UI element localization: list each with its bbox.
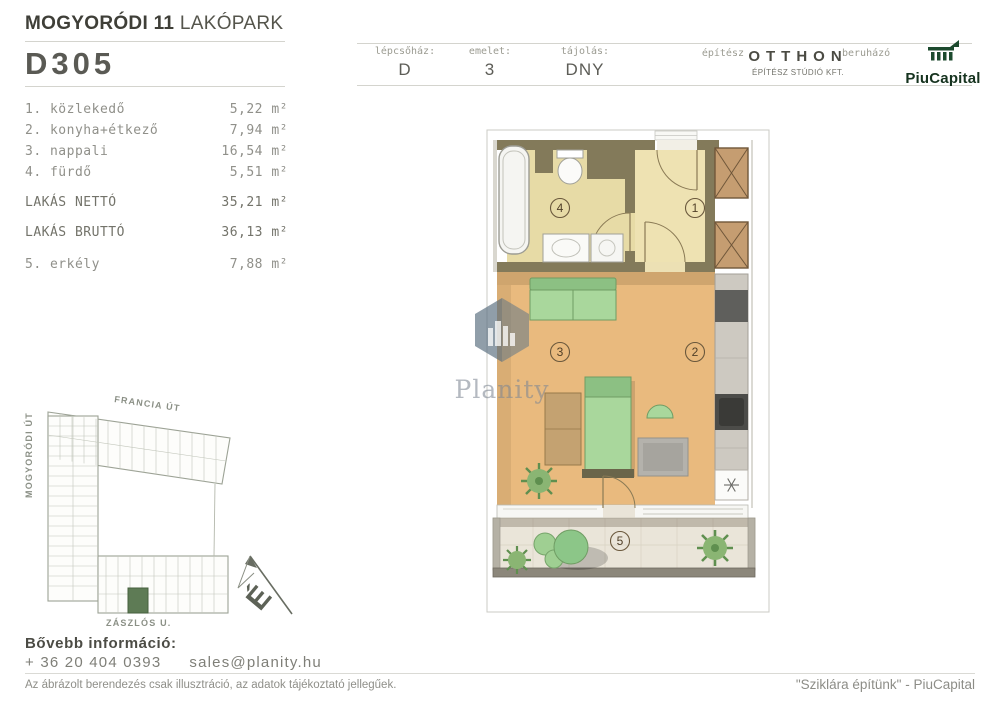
project-name-suffix: LAKÓPARK xyxy=(180,13,283,34)
meta-orientation: tájolás: DNY xyxy=(530,46,640,80)
total-label: LAKÁS BRUTTÓ xyxy=(25,222,125,243)
contact-heading: Bővebb információ: xyxy=(25,635,177,652)
ac-unit xyxy=(715,470,748,500)
compass: É xyxy=(226,530,306,630)
page-title: MOGYORÓDI 11 LAKÓPARK xyxy=(25,13,283,35)
room-number-2: 2 xyxy=(692,345,699,359)
project-name: MOGYORÓDI 11 xyxy=(25,13,174,34)
balcony-railing xyxy=(493,568,755,577)
contact-email: sales@planity.hu xyxy=(189,654,322,671)
room-row: 4. fürdő 5,51 m² xyxy=(25,162,288,183)
street-label-top: FRANCIA ÚT xyxy=(114,393,182,413)
column-logo-icon xyxy=(926,40,960,64)
meta-staircase: lépcsőház: D xyxy=(360,46,450,80)
developer-name: PiuCapital xyxy=(900,70,986,87)
meta-floor-label: emelet: xyxy=(450,46,530,57)
entrance-opening xyxy=(657,140,697,150)
contact-phone: + 36 20 404 0393 xyxy=(25,654,161,671)
room-row: 1. közlekedő 5,22 m² xyxy=(25,99,288,120)
balcony-row: 5. erkély 7,88 m² xyxy=(25,254,288,275)
kitchen-counter xyxy=(715,274,748,470)
disclaimer-text: Az ábrázolt berendezés csak illusztráció… xyxy=(25,679,396,691)
meta-floor-value: 3 xyxy=(450,60,530,80)
room-number-3: 3 xyxy=(557,345,564,359)
room-area: 5,51 m² xyxy=(230,162,288,183)
slogan-text: "Sziklára építünk" - PiuCapital xyxy=(600,677,975,692)
sofa xyxy=(530,278,616,320)
total-area: 35,21 m² xyxy=(221,192,288,213)
architect-subtitle: ÉPÍTÉSZ STÚDIÓ KFT. xyxy=(746,68,850,77)
room-area: 5,22 m² xyxy=(230,99,288,120)
total-area: 36,13 m² xyxy=(221,222,288,243)
architect-logo: OTTHON ÉPÍTÉSZ STÚDIÓ KFT. xyxy=(746,48,850,77)
balcony xyxy=(493,518,755,577)
balcony-plant-right xyxy=(697,530,733,566)
room-name: 2. konyha+étkező xyxy=(25,120,158,141)
total-label: LAKÁS NETTÓ xyxy=(25,192,117,213)
room-name: 5. erkély xyxy=(25,254,100,275)
room-name: 3. nappali xyxy=(25,141,108,162)
room-area-list: 1. közlekedő 5,22 m² 2. konyha+étkező 7,… xyxy=(25,99,288,275)
room-area: 7,88 m² xyxy=(230,254,288,275)
developer-label: beruházó xyxy=(842,48,898,59)
room-row: 3. nappali 16,54 m² xyxy=(25,141,288,162)
architect-label: építész xyxy=(688,48,744,59)
meta-orientation-label: tájolás: xyxy=(530,46,640,57)
bed xyxy=(582,377,635,478)
hall-living-opening xyxy=(645,262,685,272)
meta-staircase-value: D xyxy=(360,60,450,80)
footer-divider xyxy=(25,673,975,674)
street-label-bottom: ZÁSZLÓS U. xyxy=(106,617,172,628)
divider xyxy=(25,41,285,42)
room-number-1: 1 xyxy=(692,201,699,215)
balcony-door-opening xyxy=(603,505,635,518)
room-number-4: 4 xyxy=(557,201,564,215)
room-area: 16,54 m² xyxy=(221,141,288,162)
divider xyxy=(357,85,972,86)
stove xyxy=(715,290,748,322)
highlighted-unit xyxy=(128,588,148,613)
siteplan-bottom-wing xyxy=(98,556,228,613)
room-name: 4. fürdő xyxy=(25,162,92,183)
bathtub xyxy=(499,146,529,254)
room-number-5: 5 xyxy=(617,534,624,548)
sink xyxy=(543,234,589,262)
street-label-left: MOGYORÓDI ÚT xyxy=(23,412,34,498)
unit-id: D305 xyxy=(25,46,115,82)
siteplan-boundary xyxy=(214,484,215,556)
architect-name: OTTHON xyxy=(746,48,850,65)
floor-plan: 1 2 3 4 5 xyxy=(483,118,773,623)
divider xyxy=(357,43,972,44)
net-area-row: LAKÁS NETTÓ 35,21 m² xyxy=(25,192,288,213)
washing-machine xyxy=(591,234,623,262)
balcony-table xyxy=(554,530,588,564)
meta-floor: emelet: 3 xyxy=(450,46,530,80)
toilet xyxy=(557,150,583,184)
divider xyxy=(25,86,285,87)
indoor-plant xyxy=(521,463,557,499)
developer-logo: PiuCapital xyxy=(900,40,986,87)
contact-row: + 36 20 404 0393 sales@planity.hu xyxy=(25,654,322,671)
meta-orientation-value: DNY xyxy=(530,60,640,80)
room-row: 2. konyha+étkező 7,94 m² xyxy=(25,120,288,141)
compass-north-letter: É xyxy=(239,579,278,616)
room-name: 1. közlekedő xyxy=(25,99,125,120)
meta-staircase-label: lépcsőház: xyxy=(360,46,450,57)
wardrobe xyxy=(545,393,581,465)
room-area: 7,94 m² xyxy=(230,120,288,141)
balcony-plant-left xyxy=(503,546,531,574)
gross-area-row: LAKÁS BRUTTÓ 36,13 m² xyxy=(25,222,288,243)
floorplan-sheet: MOGYORÓDI 11 LAKÓPARK D305 lépcsőház: D … xyxy=(0,0,1000,707)
